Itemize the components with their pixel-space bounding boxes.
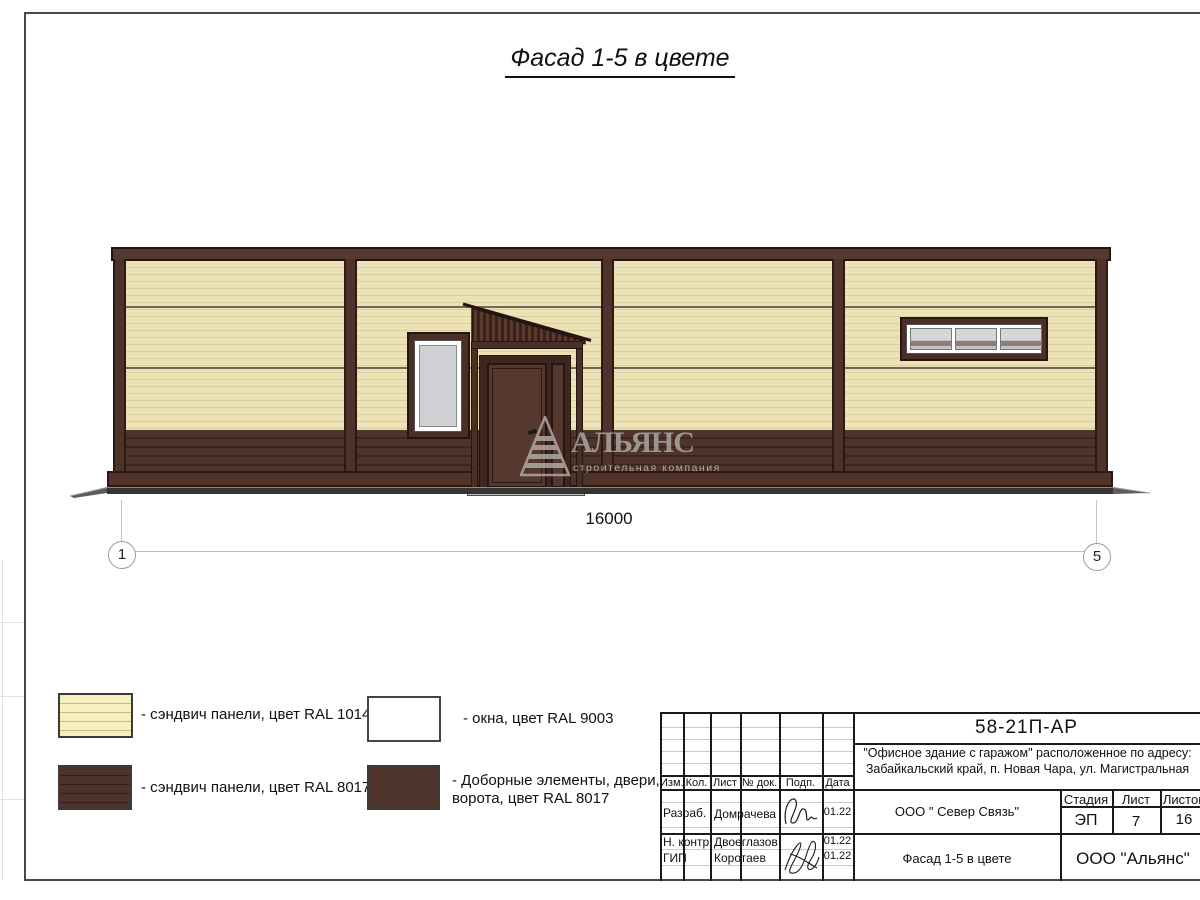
window-transom-bar [1001, 341, 1041, 346]
signature-scribble [779, 790, 822, 881]
pilaster [113, 259, 126, 471]
right-window-pane [1000, 328, 1042, 350]
col-kol: Кол. [683, 777, 710, 789]
window-transom-bar [911, 341, 951, 346]
col-data: Дата [822, 777, 853, 789]
date-razrab: 01.22 [822, 806, 853, 818]
right-window-pane [910, 328, 952, 350]
dimension-value: 16000 [559, 509, 659, 529]
watermark-triangle-logo [520, 416, 572, 478]
legend-label: - окна, цвет RAL 9003 [463, 710, 613, 727]
frame-bottom [24, 879, 1200, 881]
drawing-title: Фасад 1-5 в цвете [853, 851, 1061, 866]
company-name: ООО "Альянс" [1060, 849, 1200, 869]
pilaster [1095, 259, 1108, 471]
date-nkontr: 01.22 [822, 835, 853, 847]
name-gip: Коротаев [714, 851, 766, 865]
col-doc: № док. [740, 777, 779, 789]
stage-label: Стадия [1060, 792, 1112, 807]
col-izm: Изм. [660, 777, 683, 789]
col-list: Лист [710, 777, 740, 789]
legend-label: - Доборные элементы, двери, [452, 772, 660, 789]
page-title: Фасад 1-5 в цвете [380, 44, 860, 78]
page-title-text: Фасад 1-5 в цвете [505, 44, 734, 78]
watermark-subtitle: строительная компания [573, 462, 721, 474]
left-window-glass [419, 345, 457, 427]
date-gip: 01.22 [822, 850, 853, 862]
sheet-value: 7 [1112, 813, 1160, 830]
doc-number: 58-21П-АР [853, 717, 1200, 739]
stage-value: ЭП [1060, 812, 1112, 830]
window-transom-bar [956, 341, 996, 346]
binding-margin-tick [0, 696, 24, 697]
project-address-line2: Забайкальский край, п. Новая Чара, ул. М… [855, 762, 1200, 776]
dimension-line [121, 551, 1097, 552]
sheets-total-value: 16 [1160, 811, 1200, 828]
sheets-total-label: Листов [1160, 792, 1200, 807]
binding-margin-tick [0, 799, 24, 800]
col-podp: Подп. [779, 777, 822, 789]
legend-swatch-ral1014 [58, 693, 133, 738]
frame-left [24, 12, 26, 881]
frame-top [24, 12, 1200, 14]
legend-label-line2: ворота, цвет RAL 8017 [452, 790, 609, 807]
sheet-label: Лист [1112, 792, 1160, 807]
canopy-header-beam [471, 341, 583, 349]
watermark-title: АЛЬЯНС [571, 426, 694, 460]
pilaster [832, 259, 845, 471]
name-razrab: Домрачева [714, 807, 776, 821]
binding-margin [2, 560, 3, 880]
role-gip: ГИП [663, 851, 687, 865]
client-name: ООО " Север Связь" [853, 804, 1061, 819]
canopy-post-left [471, 341, 478, 490]
binding-margin-tick [0, 622, 24, 623]
legend-swatch-ral9003 [367, 696, 441, 742]
name-nkontr: Двоеглазов [714, 835, 778, 849]
role-nkontr: Н. контр. [663, 835, 713, 849]
drawing-sheet: Фасад 1-5 в цвете [0, 0, 1200, 900]
legend-label: - сэндвич панели, цвет RAL 8017 [141, 779, 370, 796]
legend-label: - сэндвич панели, цвет RAL 1014 [141, 706, 370, 723]
grid-bubble-1: 1 [108, 541, 136, 569]
role-razrab: Разраб. [663, 806, 706, 820]
ground-line [60, 484, 1170, 504]
project-address-line1: "Офисное здание с гаражом" расположенное… [855, 746, 1200, 760]
watermark: АЛЬЯНС строительная компания [505, 408, 735, 480]
pilaster [344, 259, 357, 471]
right-window-pane [955, 328, 997, 350]
legend-swatch-ral8017-solid [367, 765, 440, 810]
grid-bubble-5: 5 [1083, 543, 1111, 571]
legend-swatch-ral8017-panels [58, 765, 132, 810]
